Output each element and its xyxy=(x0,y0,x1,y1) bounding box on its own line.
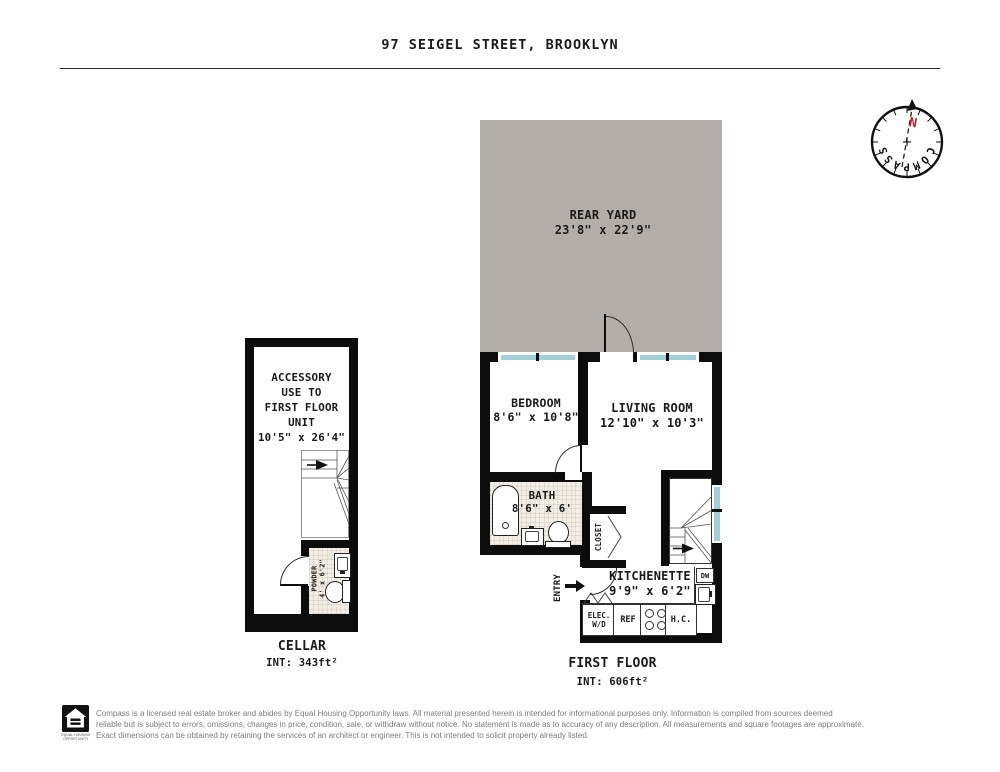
kitchenette-name: KITCHENETTE xyxy=(600,569,700,584)
bath-sink-basin xyxy=(525,531,539,542)
stove-burners-icon xyxy=(645,609,666,630)
powder-sink-faucet xyxy=(340,571,345,574)
powder-name: POWDER xyxy=(311,555,319,603)
bath-dims: 8'6" x 6' xyxy=(506,502,578,515)
stairs-icon xyxy=(669,478,712,564)
bedroom-label: BEDROOM 8'6" x 10'8" xyxy=(486,396,586,425)
living-room-label: LIVING ROOM 12'10" x 10'3" xyxy=(592,401,712,431)
first-floor-title: FIRST FLOOR xyxy=(540,656,685,672)
kitchenette-label: KITCHENETTE 9'9" x 6'2" xyxy=(600,569,700,599)
equal-housing-logo xyxy=(62,705,89,732)
bathtub-drain xyxy=(502,522,509,529)
wall xyxy=(618,560,626,568)
rear-yard-name: REAR YARD xyxy=(520,208,686,223)
refrigerator: REF xyxy=(613,604,643,636)
closet-door-chevron-icon xyxy=(606,514,624,560)
disclaimer: Compass is a licensed real estate broker… xyxy=(96,708,940,741)
kitchenette-dims: 9'9" x 6'2" xyxy=(600,584,700,599)
rear-yard-label: REAR YARD 23'8" x 22'9" xyxy=(520,208,686,238)
cellar-area: INT: 343ft² xyxy=(245,657,359,670)
cellar-note-line: 10'5" x 26'4" xyxy=(256,430,347,445)
cellar-note-line: UNIT xyxy=(256,415,347,430)
rear-yard-dims: 23'8" x 22'9" xyxy=(520,223,686,238)
cellar-note-line: USE TO xyxy=(256,385,347,400)
first-floor-area: INT: 606ft² xyxy=(540,676,685,689)
floor-plan-page: 97 SEIGEL STREET, BROOKLYN N C O M P A S… xyxy=(0,0,1000,772)
header-divider xyxy=(60,68,940,69)
wall xyxy=(480,352,490,555)
wall-bedroom-bath xyxy=(480,472,565,482)
entry-arrow-stem xyxy=(565,584,576,588)
cellar-stairs-icon xyxy=(301,450,349,538)
cellar-title: CELLAR xyxy=(245,639,359,655)
bedroom-name: BEDROOM xyxy=(486,396,586,410)
cellar-note-line: ACCESSORY xyxy=(256,370,347,385)
cellar-note-line: FIRST FLOOR xyxy=(256,400,347,415)
stair-window xyxy=(714,487,720,541)
wall-powder-top xyxy=(301,540,349,548)
page-title: 97 SEIGEL STREET, BROOKLYN xyxy=(0,37,1000,54)
wall-stairs-top xyxy=(661,470,712,478)
bath-toilet-tank xyxy=(545,541,571,548)
window-mullion xyxy=(536,353,539,361)
disclaimer-line: reliable but is subject to errors, omiss… xyxy=(96,719,940,730)
bedroom-door-swing xyxy=(555,445,581,473)
living-room-dims: 12'10" x 10'3" xyxy=(592,416,712,431)
wd-label: W/D xyxy=(592,620,606,629)
kitchen-sink-faucet xyxy=(709,591,712,597)
bath-sink-faucet xyxy=(529,526,534,529)
compass-needle-arrow-icon xyxy=(907,99,917,111)
bath-label: BATH 8'6" x 6' xyxy=(506,489,578,516)
wall-closet-left xyxy=(582,506,590,568)
wall-stairs-left xyxy=(661,470,669,566)
bedroom-dims: 8'6" x 10'8" xyxy=(486,410,586,424)
equal-housing-caption: EQUAL HOUSING OPPORTUNITY xyxy=(56,733,96,741)
hc-cabinet: H.C. xyxy=(665,604,697,636)
cellar-note: ACCESSORY USE TO FIRST FLOOR UNIT 10'5" … xyxy=(256,370,347,445)
svg-text:P: P xyxy=(903,160,910,172)
window-mullion xyxy=(666,353,669,361)
entry-arrow-icon xyxy=(576,580,585,592)
elec-label: ELEC. xyxy=(588,611,611,620)
disclaimer-line: Exact dimensions can be obtained by reta… xyxy=(96,730,940,741)
closet-label: CLOSET xyxy=(594,520,606,554)
wall xyxy=(618,506,626,514)
living-room-name: LIVING ROOM xyxy=(592,401,712,416)
powder-sink-basin xyxy=(337,557,348,571)
bath-name: BATH xyxy=(506,489,578,502)
entry-label: ENTRY xyxy=(553,567,565,609)
disclaimer-line: Compass is a licensed real estate broker… xyxy=(96,708,940,719)
compass-icon: N C O M P A S S xyxy=(862,97,952,187)
powder-toilet-tank xyxy=(342,580,351,603)
elec-wd-closet: ELEC. W/D xyxy=(582,604,616,636)
window-mullion xyxy=(712,509,722,512)
